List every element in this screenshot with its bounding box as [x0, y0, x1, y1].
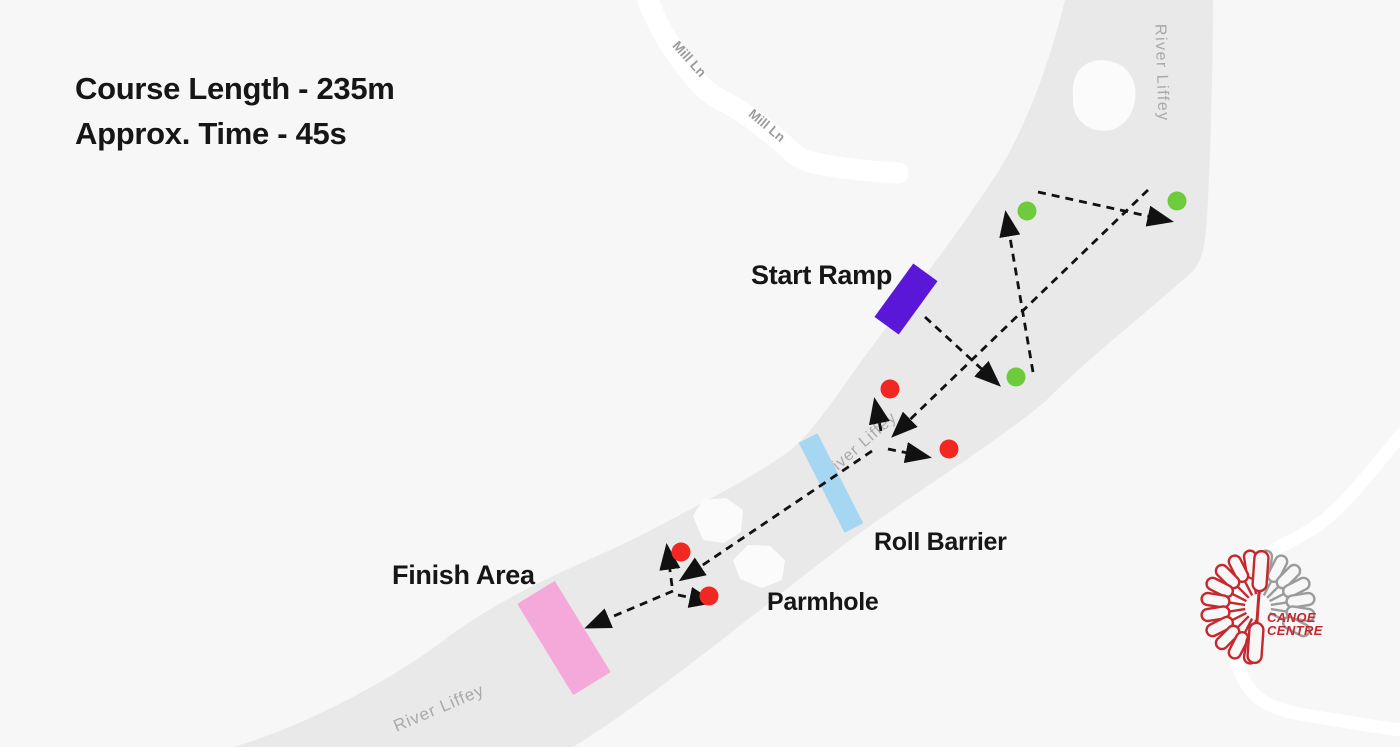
approx-time-text: Approx. Time - 45s	[75, 111, 395, 156]
mill-lane-road	[644, 0, 898, 173]
course-info: Course Length - 235m Approx. Time - 45s	[75, 66, 395, 156]
label-parmhole: Parmhole	[767, 590, 879, 615]
course-length-text: Course Length - 235m	[75, 66, 395, 111]
label-start-ramp: Start Ramp	[751, 262, 892, 289]
map-label-river-liffey-top: River Liffey	[1151, 24, 1171, 122]
green-gate-marker	[1018, 202, 1037, 221]
green-gate-marker	[1168, 192, 1187, 211]
canoe-centre-logo: CANOE CENTRE	[1201, 550, 1323, 664]
label-finish-area: Finish Area	[392, 562, 535, 589]
red-gate-marker	[672, 543, 691, 562]
red-gate-marker	[940, 440, 959, 459]
logo-text-centre: CENTRE	[1267, 623, 1323, 638]
green-gate-marker	[1007, 368, 1026, 387]
course-map: Mill Ln Mill Ln River Liffey River Liffe…	[0, 0, 1400, 747]
label-roll-barrier: Roll Barrier	[874, 530, 1007, 555]
red-gate-marker	[700, 587, 719, 606]
red-gate-marker	[881, 380, 900, 399]
river-island	[1073, 60, 1136, 131]
